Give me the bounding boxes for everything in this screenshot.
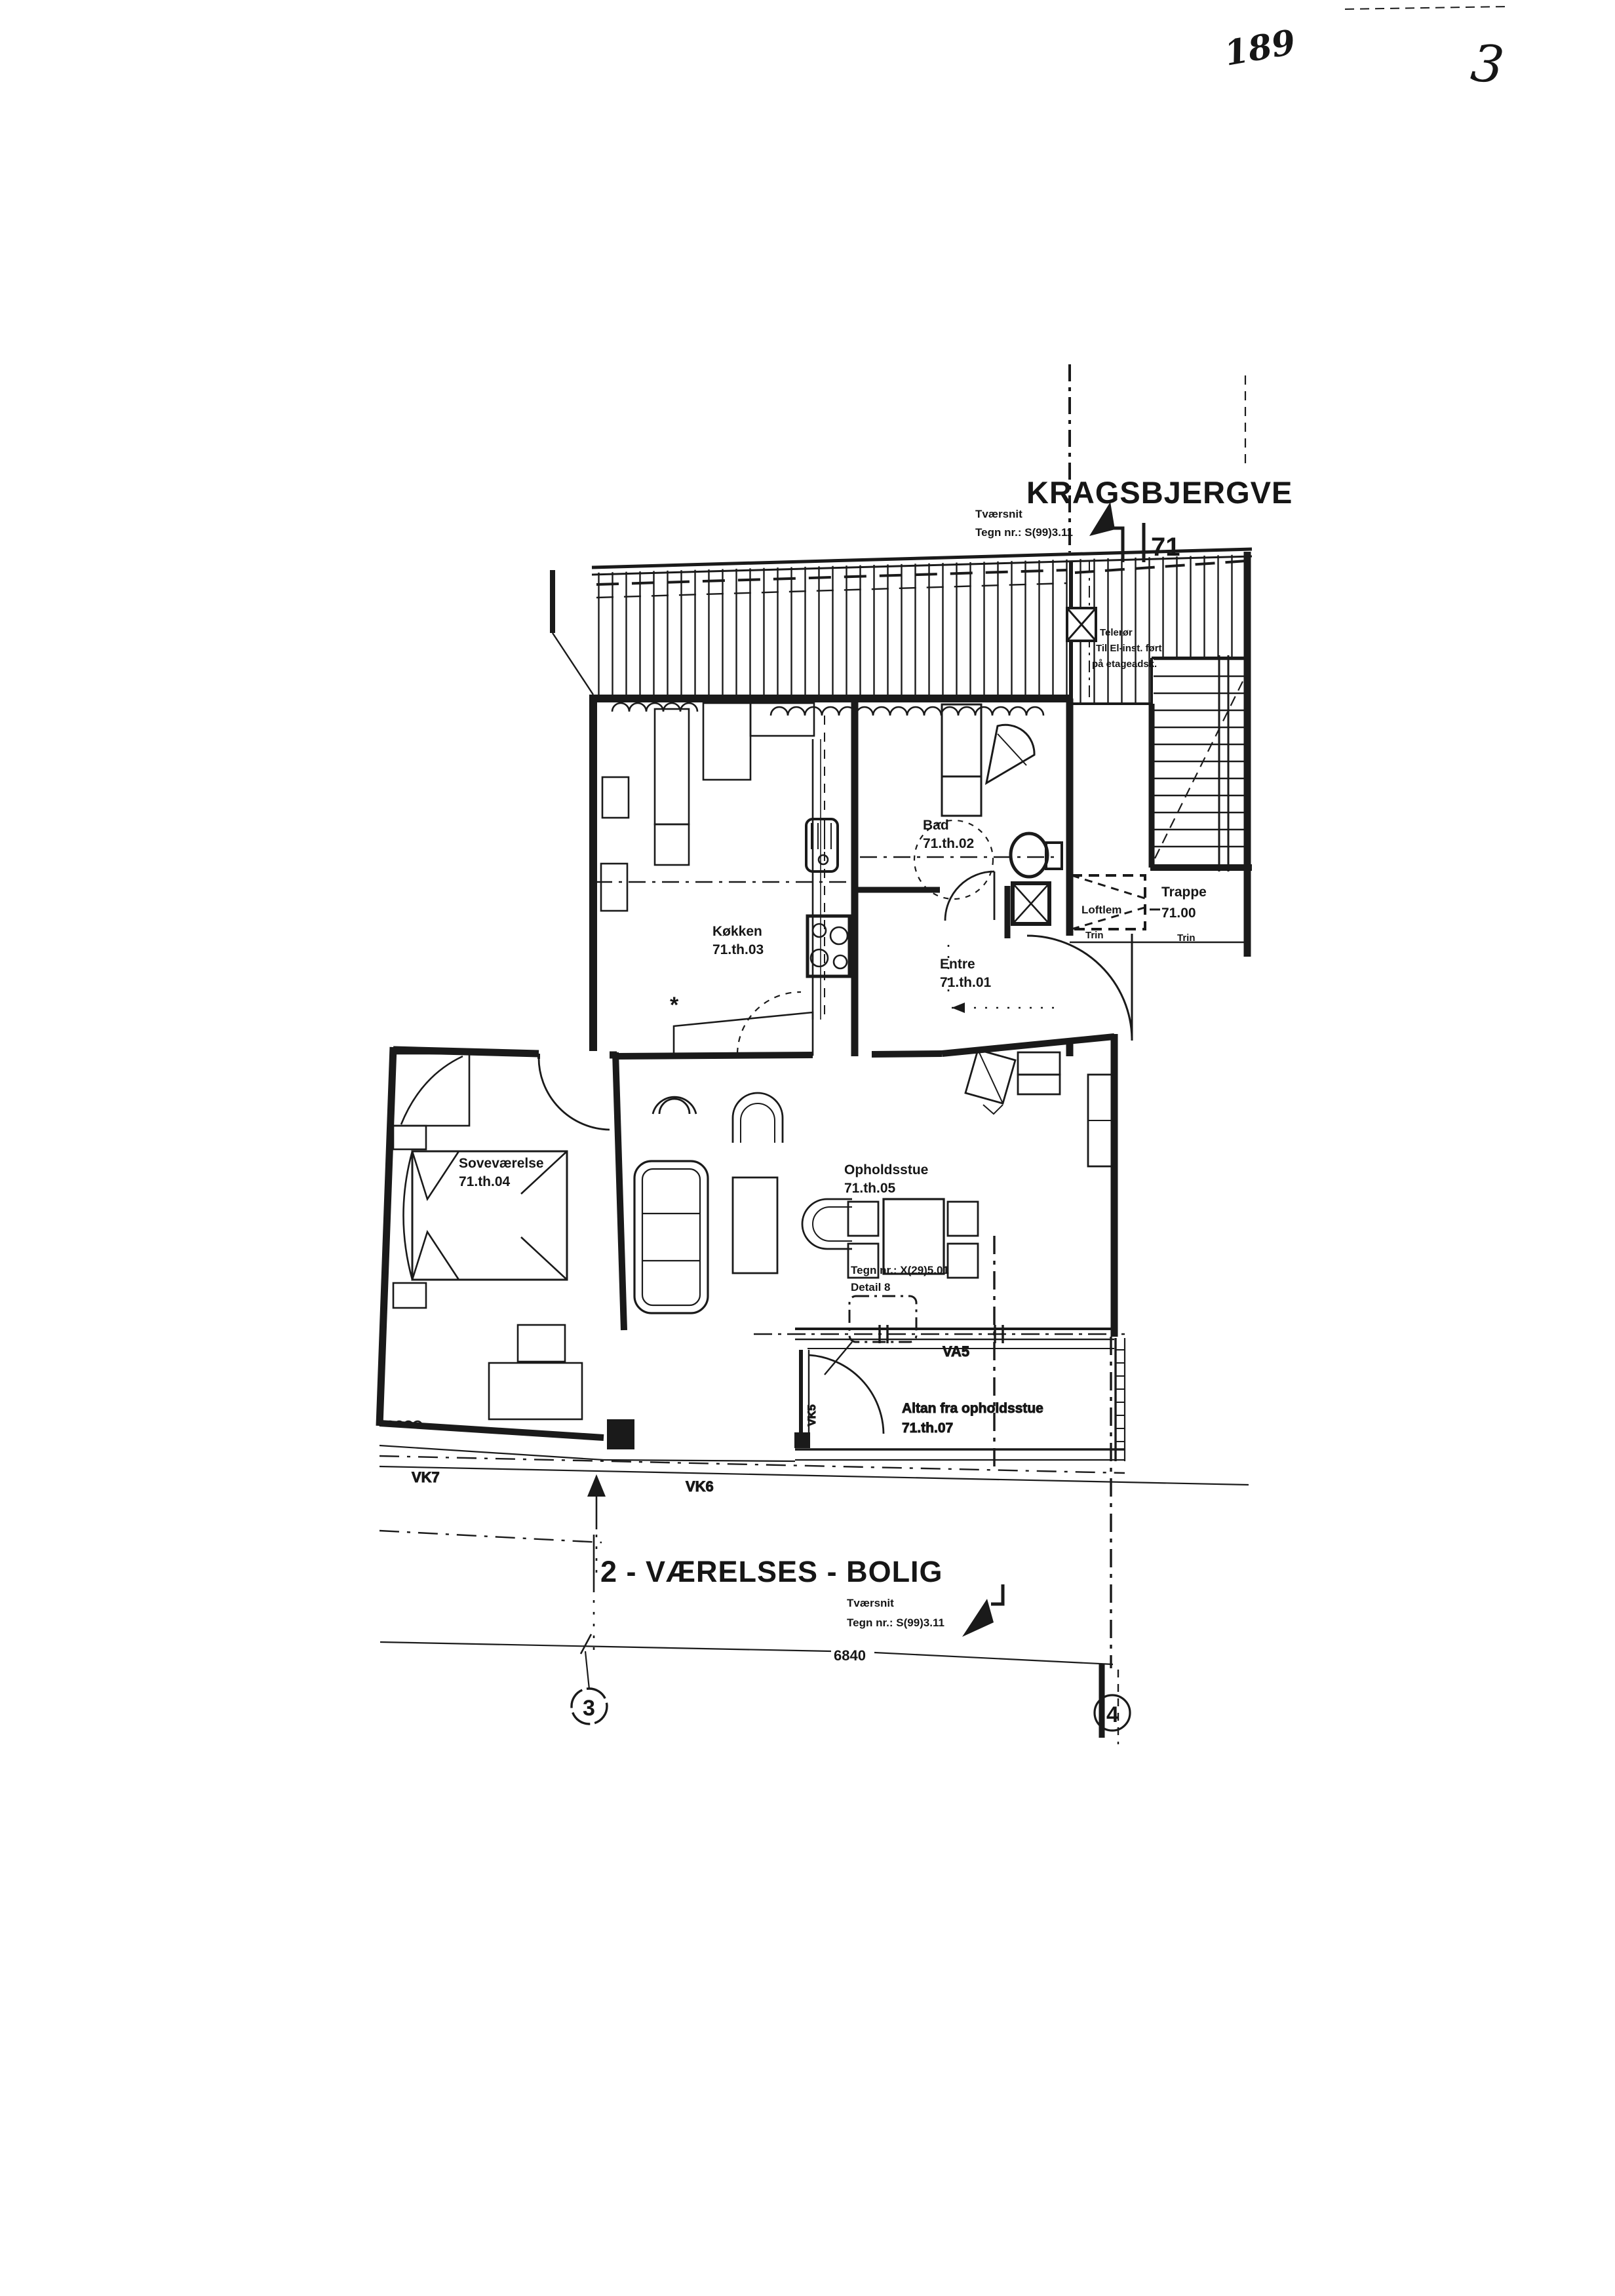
balcony: VA5 VK5 Altan fra opholdsstue 71.th.07	[754, 1325, 1125, 1461]
floor-plan-page: 189 3 KRAGSBJERGVE Tværsnit Tegn nr.: S(…	[0, 0, 1615, 2296]
dresser-small-icon	[518, 1325, 565, 1362]
room-trappe-name: Trappe	[1161, 885, 1207, 900]
room-entre-name: Entre	[940, 957, 975, 972]
bedroom-door	[539, 1056, 610, 1130]
nightstand-bottom-icon	[393, 1283, 426, 1308]
gallery-walkway: Telerør Til El-inst. ført på etageadsk.	[553, 549, 1252, 704]
shaft-note-line3: på etageadsk.	[1092, 659, 1157, 670]
coffee-table-icon	[733, 1177, 777, 1273]
wall-sofa-icon	[1088, 1075, 1113, 1166]
sideboard-icon	[1018, 1052, 1060, 1094]
entre: Entre 71.th.01	[940, 934, 1132, 1041]
section-bottom-type: Tværsnit	[847, 1597, 894, 1609]
nightstand-top-icon	[393, 1126, 426, 1149]
section-top-drawing-no: Tegn nr.: S(99)3.11	[975, 526, 1073, 539]
loftlem-label: Loftlem	[1081, 904, 1121, 916]
stair-treads	[1154, 659, 1244, 847]
room-altan-id: 71.th.07	[902, 1421, 953, 1436]
room-sovevaerelse-id: 71.th.04	[459, 1174, 511, 1189]
section-arrow-down-icon	[962, 1584, 1003, 1637]
toilet-icon	[1011, 833, 1062, 877]
balcony-door	[794, 1350, 884, 1448]
opening-vk5-label: VK5	[806, 1404, 818, 1426]
kitchen-asterisk: *	[670, 993, 679, 1018]
shower-seat-icon	[986, 725, 1034, 783]
section-bottom-drawing-no: Tegn nr.: S(99)3.11	[847, 1617, 944, 1629]
top-section-marker: KRAGSBJERGVE Tværsnit Tegn nr.: S(99)3.1…	[975, 364, 1293, 562]
room-opholdsstue-id: 71.th.05	[844, 1181, 896, 1196]
grid-bubble-4-label: 4	[1106, 1702, 1119, 1727]
detail-callout-line2: Detail 8	[851, 1281, 890, 1293]
shaft-box-icon	[1067, 608, 1096, 641]
room-bad-name: Bad	[923, 818, 949, 833]
room-entre-id: 71.th.01	[940, 975, 992, 990]
dimension-line: 6840	[380, 1634, 1113, 1664]
sink-icon	[806, 819, 838, 871]
handwritten-page-number: 3	[1468, 33, 1507, 96]
section-lines	[994, 1236, 1111, 1668]
room-bad-id: 71.th.02	[923, 836, 974, 851]
stove-icon	[807, 916, 849, 976]
handwritten-number: 189	[1222, 22, 1298, 74]
room-koekken-id: 71.th.03	[712, 942, 764, 957]
street-name-label: KRAGSBJERGVE	[1026, 475, 1293, 510]
duct-shaft-icon	[1013, 883, 1049, 924]
insulation-scallops-right	[771, 707, 1043, 716]
chair-round-icon	[653, 1097, 696, 1114]
shaft-note-line1: Telerør	[1100, 627, 1133, 638]
bedroom: Soveværelse 71.th.04	[392, 1054, 582, 1419]
scan-marks: 189 3	[1222, 7, 1508, 96]
armchair-right-icon	[802, 1199, 852, 1249]
shaft-note-line2: Til El-inst. ført	[1096, 643, 1162, 654]
drawing-title: 2 - VÆRELSES - BOLIG	[600, 1555, 943, 1588]
footer: 2 - VÆRELSES - BOLIG Tværsnit Tegn nr.: …	[380, 1535, 1130, 1744]
trin-right-label: Trin	[1177, 932, 1196, 944]
room-sovevaerelse-name: Soveværelse	[459, 1156, 544, 1171]
room-trappe-id: 71.00	[1161, 906, 1196, 921]
tv-unit-icon	[965, 1050, 1015, 1114]
upper-block-walls	[593, 695, 1072, 1056]
room-altan-name: Altan fra opholdsstue	[902, 1401, 1043, 1416]
kitchen: * Køkken 71.th.03	[595, 703, 852, 1055]
detail-callout-line1: Tegn nr.: X(29)5.01	[851, 1264, 949, 1276]
opening-vk6-label: VK6	[686, 1478, 714, 1495]
armchair-top-icon	[733, 1093, 783, 1143]
floor-plan-drawing: 189 3 KRAGSBJERGVE Tværsnit Tegn nr.: S(…	[0, 0, 1615, 2296]
room-koekken-name: Køkken	[712, 924, 762, 939]
entrance-door	[1027, 934, 1132, 1041]
trin-left-label: Trin	[1085, 930, 1104, 941]
room-opholdsstue-name: Opholdsstue	[844, 1162, 928, 1177]
opening-va5-label: VA5	[943, 1343, 969, 1360]
grid-bubble-4: 4	[1095, 1664, 1130, 1744]
sofa-icon	[634, 1161, 708, 1313]
grid-bubble-3: 3	[572, 1651, 607, 1724]
grid-bubble-3-label: 3	[583, 1696, 595, 1721]
opening-vk7-label: VK7	[412, 1469, 440, 1485]
section-top-type: Tværsnit	[975, 508, 1022, 520]
desk-icon	[489, 1363, 582, 1419]
rail-hatch	[1116, 1350, 1125, 1442]
loft-hatch: Loftlem	[1072, 875, 1147, 929]
dimension-6840: 6840	[834, 1647, 866, 1664]
detail-callout: Tegn nr.: X(29)5.01 Detail 8	[825, 1264, 949, 1375]
